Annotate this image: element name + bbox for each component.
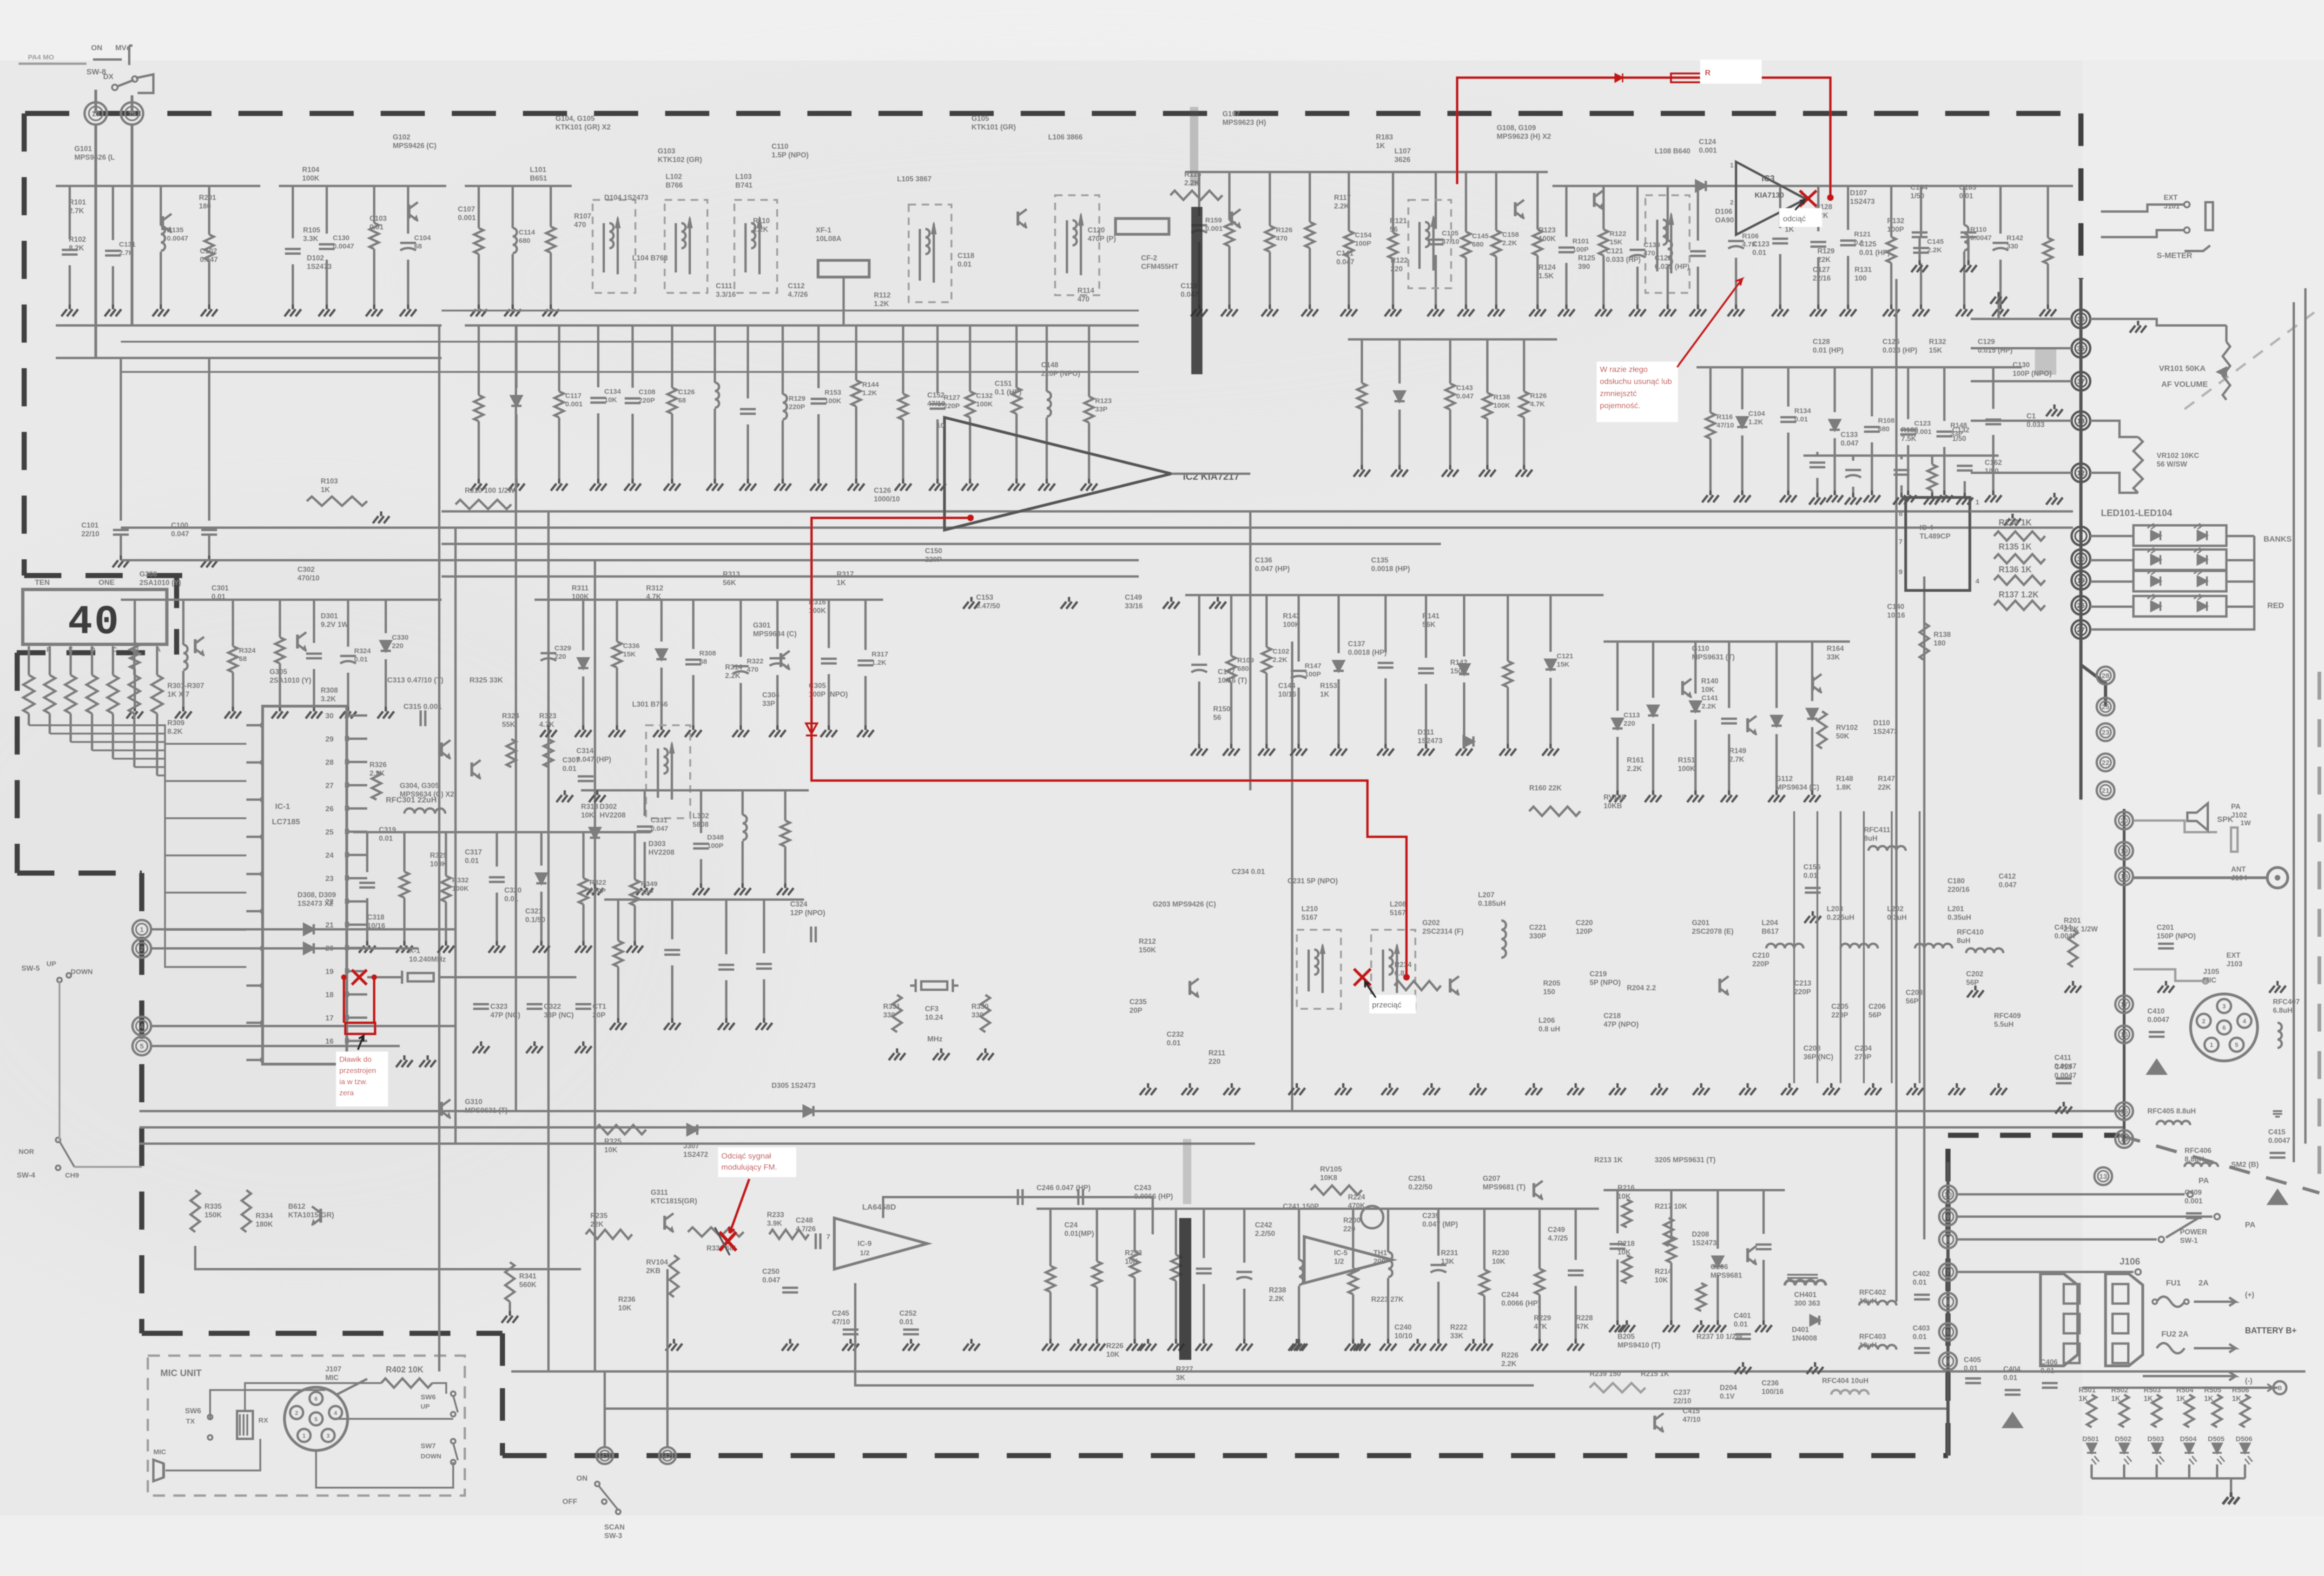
- svg-text:SW7: SW7: [421, 1442, 436, 1450]
- svg-text:220P: 220P: [789, 403, 805, 411]
- svg-text:30: 30: [325, 712, 334, 720]
- svg-text:C153: C153: [976, 594, 993, 602]
- svg-text:SW-1: SW-1: [2180, 1237, 2198, 1245]
- svg-text:220P (NPO): 220P (NPO): [1041, 370, 1080, 378]
- svg-text:0.0066 (HP): 0.0066 (HP): [1134, 1193, 1173, 1201]
- svg-text:Odciąć sygnał: Odciąć sygnał: [721, 1152, 771, 1160]
- svg-text:0.01: 0.01: [957, 261, 972, 269]
- svg-text:B651: B651: [530, 175, 547, 183]
- svg-text:C145: C145: [1927, 238, 1944, 246]
- svg-text:23: 23: [325, 875, 334, 883]
- svg-text:G203 MPS9426 (C): G203 MPS9426 (C): [1153, 901, 1216, 908]
- svg-text:2SA1010 (Y): 2SA1010 (Y): [139, 579, 181, 587]
- svg-text:SW-5: SW-5: [21, 965, 40, 973]
- svg-text:470: 470: [1644, 250, 1655, 258]
- svg-text:68: 68: [414, 243, 422, 251]
- svg-text:0.033: 0.033: [2027, 421, 2045, 429]
- svg-text:30: 30: [2077, 555, 2085, 563]
- svg-text:D302: D302: [600, 803, 617, 811]
- svg-text:C123: C123: [1752, 240, 1769, 248]
- svg-text:C144: C144: [1278, 682, 1295, 690]
- svg-text:20P: 20P: [1129, 1007, 1142, 1015]
- svg-text:MHz: MHz: [927, 1035, 943, 1043]
- svg-text:IC-4: IC-4: [1920, 524, 1934, 532]
- svg-text:B766: B766: [666, 182, 683, 190]
- svg-text:G201: G201: [1692, 919, 1710, 927]
- svg-text:100K: 100K: [1678, 765, 1696, 773]
- svg-text:14: 14: [128, 110, 136, 118]
- svg-text:1K: 1K: [2111, 1395, 2121, 1403]
- svg-text:3: 3: [327, 1433, 330, 1439]
- svg-text:220: 220: [1391, 265, 1403, 273]
- svg-text:D506: D506: [2236, 1435, 2252, 1443]
- svg-text:12: 12: [2077, 469, 2085, 477]
- svg-text:MIC UNIT: MIC UNIT: [160, 1368, 202, 1378]
- svg-text:1K: 1K: [321, 486, 330, 494]
- svg-text:R227: R227: [1176, 1365, 1193, 1373]
- svg-text:1K: 1K: [1320, 691, 1330, 699]
- svg-text:37: 37: [2077, 377, 2085, 385]
- svg-text:modulujący FM.: modulujący FM.: [721, 1163, 777, 1172]
- svg-text:2.2K: 2.2K: [1927, 246, 1942, 254]
- svg-text:RFC405 8.8uH: RFC405 8.8uH: [2147, 1107, 2196, 1115]
- svg-text:C218: C218: [1604, 1012, 1621, 1020]
- svg-text:IC3: IC3: [1762, 174, 1775, 183]
- svg-text:2.2K: 2.2K: [725, 672, 741, 680]
- svg-text:R312: R312: [646, 584, 663, 592]
- svg-text:C107: C107: [458, 205, 475, 213]
- svg-text:5P (NPO): 5P (NPO): [1590, 979, 1621, 987]
- svg-text:C118: C118: [957, 252, 975, 260]
- svg-text:G207: G207: [1483, 1175, 1500, 1183]
- svg-text:C322: C322: [544, 1003, 561, 1011]
- svg-text:C319: C319: [379, 826, 396, 834]
- svg-text:0.047: 0.047: [1999, 881, 2017, 889]
- svg-text:10K: 10K: [1655, 1277, 1668, 1285]
- svg-text:R317: R317: [837, 570, 854, 578]
- svg-text:R325 33K: R325 33K: [469, 676, 503, 684]
- svg-text:4.7/25: 4.7/25: [1548, 1235, 1568, 1243]
- svg-text:G110: G110: [1692, 645, 1709, 653]
- svg-text:19: 19: [2120, 847, 2128, 855]
- svg-text:470: 470: [1077, 296, 1089, 304]
- svg-text:0.047: 0.047: [171, 530, 189, 538]
- svg-text:R129: R129: [789, 395, 805, 403]
- svg-text:C108: C108: [639, 388, 655, 396]
- svg-text:36P (NC): 36P (NC): [1803, 1053, 1833, 1061]
- svg-text:150K: 150K: [1450, 668, 1468, 675]
- svg-text:150K: 150K: [1139, 947, 1156, 954]
- svg-text:MPS9631 (T): MPS9631 (T): [1692, 654, 1735, 662]
- svg-text:10K: 10K: [581, 812, 594, 820]
- svg-text:ia w tzw.: ia w tzw.: [339, 1078, 367, 1086]
- svg-text:55K: 55K: [502, 721, 515, 729]
- svg-text:L107: L107: [1394, 147, 1411, 155]
- svg-text:25: 25: [325, 828, 334, 836]
- svg-text:25: 25: [2102, 703, 2110, 711]
- svg-text:C315 0.001: C315 0.001: [403, 703, 442, 711]
- svg-text:7: 7: [1946, 1268, 1950, 1276]
- svg-text:5: 5: [315, 1416, 318, 1423]
- svg-text:15K: 15K: [1929, 347, 1942, 355]
- svg-text:56: 56: [1213, 714, 1221, 722]
- svg-text:IC-1: IC-1: [275, 802, 290, 811]
- svg-text:C415: C415: [1683, 1407, 1700, 1415]
- svg-text:R214: R214: [1655, 1268, 1672, 1276]
- svg-text:C231 5P (NPO): C231 5P (NPO): [1287, 877, 1338, 885]
- svg-text:0.01: 0.01: [1794, 416, 1808, 424]
- svg-text:10/16: 10/16: [1887, 612, 1905, 620]
- svg-text:3.3K: 3.3K: [303, 235, 319, 243]
- svg-text:PA: PA: [2231, 803, 2240, 811]
- svg-text:L206: L206: [1538, 1017, 1555, 1025]
- svg-text:C220: C220: [1576, 919, 1593, 927]
- svg-text:B617: B617: [1762, 928, 1779, 936]
- svg-text:R122: R122: [1391, 257, 1408, 265]
- svg-text:J106: J106: [2119, 1257, 2140, 1267]
- svg-text:680: 680: [519, 237, 530, 245]
- svg-text:DOWN: DOWN: [421, 1452, 441, 1460]
- svg-text:X-1: X-1: [409, 947, 421, 955]
- svg-text:C239: C239: [1422, 1212, 1439, 1220]
- svg-text:2.2/50: 2.2/50: [1255, 1230, 1275, 1238]
- svg-text:R121: R121: [1390, 217, 1407, 225]
- svg-text:VR101 50KA: VR101 50KA: [2159, 364, 2205, 373]
- svg-text:C129: C129: [1978, 338, 1995, 346]
- svg-text:2.2K 1/2W: 2.2K 1/2W: [2064, 926, 2098, 934]
- svg-text:1/50: 1/50: [1910, 192, 1924, 200]
- svg-text:KTK102 (GR): KTK102 (GR): [658, 156, 702, 164]
- svg-text:C329: C329: [555, 644, 571, 652]
- svg-text:R107: R107: [574, 212, 591, 220]
- svg-text:C321: C321: [525, 907, 542, 915]
- svg-text:1: 1: [303, 1433, 306, 1439]
- svg-text:pojemność.: pojemność.: [1600, 401, 1640, 410]
- svg-text:ON: ON: [91, 44, 102, 52]
- svg-text:NOR: NOR: [19, 1148, 34, 1156]
- svg-text:MPS9634 (C): MPS9634 (C): [1776, 784, 1819, 792]
- svg-text:C139: C139: [1644, 241, 1660, 249]
- svg-text:HV2208: HV2208: [600, 812, 626, 820]
- svg-text:220: 220: [1624, 720, 1635, 728]
- svg-text:15K: 15K: [1557, 661, 1570, 669]
- svg-text:33P: 33P: [1095, 405, 1108, 413]
- svg-text:R332: R332: [452, 876, 469, 884]
- svg-text:1.2K: 1.2K: [1748, 418, 1763, 426]
- svg-text:R140: R140: [1701, 677, 1718, 685]
- svg-text:D208: D208: [1692, 1231, 1709, 1238]
- svg-text:R215 1K: R215 1K: [1641, 1370, 1670, 1378]
- svg-text:16: 16: [325, 1038, 334, 1046]
- svg-text:R160 22K: R160 22K: [1529, 784, 1562, 792]
- svg-text:68: 68: [700, 658, 707, 666]
- svg-text:R308: R308: [321, 687, 338, 695]
- svg-text:220P: 220P: [925, 556, 942, 564]
- svg-text:R143: R143: [1283, 612, 1300, 620]
- svg-text:22: 22: [2102, 759, 2110, 767]
- svg-text:3.2K: 3.2K: [321, 695, 337, 703]
- svg-text:C201: C201: [2157, 924, 2174, 932]
- svg-text:22/10: 22/10: [81, 530, 99, 538]
- svg-text:KTA1015(GR): KTA1015(GR): [288, 1212, 334, 1219]
- svg-text:SPK: SPK: [2217, 815, 2234, 824]
- svg-text:HV2208: HV2208: [648, 849, 674, 857]
- svg-text:2KB: 2KB: [646, 1267, 660, 1275]
- svg-text:R101: R101: [1572, 238, 1589, 245]
- svg-text:R129: R129: [1817, 247, 1835, 255]
- svg-text:1000/10: 1000/10: [874, 496, 900, 503]
- svg-text:R148: R148: [1836, 775, 1853, 783]
- svg-text:R136 1K: R136 1K: [1999, 565, 2032, 574]
- svg-text:33K: 33K: [1827, 654, 1840, 662]
- svg-text:LA6458D: LA6458D: [862, 1203, 896, 1212]
- svg-text:0.047 (HP): 0.047 (HP): [1255, 565, 1290, 573]
- svg-text:R183: R183: [1376, 133, 1393, 141]
- svg-text:4: 4: [1975, 577, 1980, 585]
- svg-text:10: 10: [937, 422, 944, 430]
- svg-text:5: 5: [2235, 1041, 2238, 1048]
- svg-text:100K: 100K: [572, 593, 589, 601]
- svg-text:1: 1: [1975, 498, 1979, 506]
- svg-text:R201: R201: [199, 194, 216, 202]
- svg-text:R104: R104: [302, 166, 319, 174]
- svg-text:C232: C232: [1167, 1031, 1184, 1039]
- svg-text:PA4 MO: PA4 MO: [28, 53, 54, 61]
- svg-text:AF VOLUME: AF VOLUME: [2161, 380, 2208, 389]
- svg-text:1N4008: 1N4008: [1792, 1335, 1817, 1343]
- svg-text:L210: L210: [1301, 905, 1318, 913]
- svg-text:220P: 220P: [1794, 988, 1811, 996]
- svg-text:CT1: CT1: [593, 1003, 607, 1011]
- svg-text:R117: R117: [1334, 194, 1351, 202]
- svg-text:1.5P (NPO): 1.5P (NPO): [772, 152, 809, 159]
- svg-text:8: 8: [1899, 510, 1902, 518]
- svg-text:MPS9623 (H) X2: MPS9623 (H) X2: [1497, 133, 1551, 141]
- svg-text:10K: 10K: [604, 1146, 618, 1154]
- svg-text:TX: TX: [186, 1417, 195, 1425]
- svg-text:1K: 1K: [2204, 1395, 2214, 1403]
- svg-text:2SA1010 (Y): 2SA1010 (Y): [270, 677, 311, 685]
- svg-text:33P (NC): 33P (NC): [544, 1012, 574, 1020]
- svg-text:RFC406: RFC406: [2185, 1147, 2212, 1155]
- svg-text:1/50: 1/50: [1985, 468, 1999, 476]
- svg-text:R324: R324: [354, 647, 371, 655]
- svg-text:C1: C1: [2027, 412, 2036, 420]
- svg-text:R116: R116: [1717, 413, 1733, 421]
- svg-text:J102: J102: [2231, 812, 2247, 820]
- svg-text:EXT: EXT: [2164, 194, 2178, 202]
- svg-text:R127: R127: [944, 394, 960, 402]
- svg-text:G301: G301: [753, 622, 771, 629]
- svg-text:SCAN: SCAN: [604, 1523, 625, 1531]
- svg-text:D505: D505: [2208, 1435, 2225, 1443]
- svg-text:C143: C143: [1456, 384, 1473, 392]
- svg-text:680: 680: [1237, 665, 1249, 673]
- svg-text:R147: R147: [1878, 775, 1895, 783]
- svg-text:220P: 220P: [589, 887, 606, 895]
- svg-text:R144: R144: [862, 381, 879, 389]
- svg-text:C132: C132: [1952, 426, 1969, 434]
- svg-text:47/10: 47/10: [927, 400, 945, 408]
- svg-text:MPS9426 (C): MPS9426 (C): [393, 142, 436, 150]
- svg-text:1.2K: 1.2K: [753, 226, 769, 234]
- svg-text:R123: R123: [1538, 226, 1556, 234]
- svg-text:C162: C162: [1985, 459, 2002, 467]
- svg-text:L302: L302: [693, 812, 709, 820]
- svg-text:C117: C117: [565, 392, 581, 400]
- svg-text:180: 180: [199, 203, 211, 211]
- svg-text:RFC404 10uH: RFC404 10uH: [1822, 1377, 1868, 1385]
- svg-text:RFC403: RFC403: [1859, 1333, 1886, 1341]
- svg-text:2A: 2A: [2199, 1278, 2209, 1287]
- svg-text:R147: R147: [1305, 662, 1321, 670]
- svg-text:C148: C148: [1041, 361, 1058, 369]
- svg-text:R228: R228: [1576, 1314, 1593, 1322]
- svg-text:10K: 10K: [1106, 1351, 1120, 1359]
- svg-text:C324: C324: [790, 901, 807, 908]
- svg-text:7.5K: 7.5K: [1901, 435, 1917, 443]
- svg-text:MPS9623 (H): MPS9623 (H): [1222, 119, 1266, 127]
- svg-text:28: 28: [325, 759, 334, 767]
- svg-text:220P: 220P: [639, 397, 655, 404]
- svg-text:D303: D303: [648, 840, 666, 848]
- svg-text:22/10: 22/10: [1673, 1397, 1691, 1405]
- svg-text:2.2K: 2.2K: [1334, 203, 1350, 211]
- svg-text:C323: C323: [490, 1003, 508, 1011]
- svg-text:8uH: 8uH: [1957, 937, 1970, 945]
- svg-text:D308, D309: D308, D309: [297, 891, 336, 899]
- svg-text:100P: 100P: [1572, 246, 1589, 254]
- svg-text:42: 42: [664, 1452, 672, 1460]
- svg-text:R402 10K: R402 10K: [386, 1365, 423, 1374]
- svg-text:B741: B741: [735, 182, 753, 190]
- svg-text:C403: C403: [1913, 1324, 1930, 1332]
- svg-text:4.7/26: 4.7/26: [796, 1225, 816, 1233]
- svg-text:220/16: 220/16: [1948, 886, 1970, 894]
- svg-text:10: 10: [1944, 1191, 1952, 1199]
- svg-text:17: 17: [325, 1014, 334, 1022]
- svg-text:C136: C136: [1255, 556, 1272, 564]
- svg-text:6.8uH: 6.8uH: [2273, 1007, 2292, 1015]
- svg-text:C113: C113: [1624, 711, 1640, 719]
- svg-text:C105: C105: [1442, 230, 1459, 238]
- svg-text:0.001: 0.001: [565, 400, 583, 408]
- svg-text:RV105: RV105: [1604, 794, 1625, 801]
- svg-text:0.1V: 0.1V: [1720, 1393, 1735, 1401]
- svg-text:R325: R325: [430, 852, 447, 860]
- svg-text:470: 470: [747, 666, 759, 674]
- svg-text:MPS9634 (C): MPS9634 (C): [753, 630, 797, 638]
- svg-text:R101: R101: [69, 199, 86, 206]
- svg-text:D104 1S2473: D104 1S2473: [604, 194, 648, 202]
- svg-text:0.001: 0.001: [458, 214, 476, 222]
- svg-text:G306: G306: [139, 570, 157, 578]
- svg-text:C302: C302: [297, 566, 315, 574]
- svg-text:100: 100: [1855, 275, 1867, 283]
- svg-text:(-): (-): [2245, 1377, 2252, 1385]
- svg-text:C249: C249: [1548, 1226, 1565, 1234]
- svg-text:4: 4: [2243, 1018, 2246, 1025]
- svg-text:150K: 150K: [205, 1212, 222, 1219]
- svg-text:C141: C141: [1336, 250, 1353, 258]
- svg-text:R200: R200: [1343, 1217, 1360, 1225]
- svg-text:0.001: 0.001: [2185, 1198, 2203, 1205]
- svg-text:3205 MPS9631 (T): 3205 MPS9631 (T): [1655, 1156, 1716, 1164]
- svg-text:2.2K: 2.2K: [1273, 656, 1287, 664]
- svg-text:180: 180: [1934, 640, 1946, 648]
- svg-text:0.047: 0.047: [200, 256, 218, 264]
- svg-text:C101: C101: [81, 522, 99, 530]
- svg-text:0.0047: 0.0047: [2147, 1016, 2169, 1024]
- svg-text:POWER: POWER: [2180, 1228, 2207, 1236]
- svg-text:L104 B763: L104 B763: [632, 254, 668, 262]
- svg-text:RFC407: RFC407: [2273, 998, 2300, 1006]
- svg-text:D111: D111: [1418, 728, 1434, 736]
- svg-text:R134: R134: [1794, 407, 1811, 415]
- svg-text:RFC410: RFC410: [1957, 928, 1984, 936]
- svg-text:D503: D503: [2147, 1435, 2164, 1443]
- svg-text:9: 9: [1946, 1213, 1950, 1221]
- svg-text:50K: 50K: [1836, 733, 1849, 741]
- svg-text:C133: C133: [1841, 431, 1858, 439]
- svg-text:C318: C318: [367, 914, 384, 921]
- svg-text:L108 B640: L108 B640: [1655, 147, 1690, 155]
- svg-text:FU1: FU1: [2166, 1278, 2181, 1287]
- svg-text:LED101-LED104: LED101-LED104: [2101, 508, 2172, 518]
- svg-text:1: 1: [1730, 161, 1734, 169]
- svg-text:DOWN: DOWN: [71, 968, 93, 976]
- svg-text:6: 6: [315, 1396, 318, 1402]
- svg-text:RFC411: RFC411: [1864, 826, 1890, 834]
- svg-text:R226: R226: [1501, 1351, 1519, 1359]
- svg-text:C402: C402: [1913, 1270, 1930, 1278]
- svg-text:68: 68: [678, 397, 686, 404]
- svg-text:MIC: MIC: [153, 1448, 166, 1456]
- svg-text:100K: 100K: [976, 400, 993, 408]
- svg-text:100K: 100K: [825, 397, 841, 405]
- svg-text:C149: C149: [1125, 594, 1142, 602]
- svg-text:0.01: 0.01: [370, 224, 384, 232]
- svg-text:G101: G101: [74, 145, 92, 153]
- svg-text:L208: L208: [1390, 901, 1406, 908]
- svg-text:33K: 33K: [1450, 1332, 1464, 1340]
- svg-text:C236: C236: [1762, 1379, 1779, 1387]
- svg-text:C151: C151: [995, 380, 1012, 388]
- svg-text:C336: C336: [623, 642, 640, 650]
- svg-text:1S2473: 1S2473: [1850, 198, 1875, 206]
- svg-text:R114: R114: [1077, 287, 1095, 295]
- svg-text:180K: 180K: [256, 1221, 273, 1229]
- svg-text:0.047 (MP): 0.047 (MP): [1422, 1221, 1458, 1229]
- svg-text:24: 24: [325, 852, 334, 860]
- svg-text:33/16: 33/16: [1125, 603, 1143, 610]
- svg-text:300 363: 300 363: [1794, 1300, 1820, 1308]
- svg-text:0.0047: 0.0047: [2268, 1137, 2290, 1145]
- svg-text:10.240MHz: 10.240MHz: [409, 956, 446, 964]
- svg-text:W razie złego: W razie złego: [1600, 365, 1648, 374]
- svg-text:R142: R142: [2007, 234, 2023, 242]
- svg-text:100P: 100P: [1355, 240, 1371, 248]
- svg-text:MPS9681: MPS9681: [1710, 1272, 1742, 1280]
- svg-text:C183: C183: [1959, 184, 1976, 192]
- svg-text:R153: R153: [1320, 682, 1337, 690]
- svg-text:9.2V 1W: 9.2V 1W: [321, 621, 349, 629]
- svg-text:C401: C401: [1734, 1312, 1751, 1320]
- svg-text:4: 4: [334, 1410, 337, 1416]
- svg-text:C125: C125: [1859, 240, 1876, 248]
- svg-text:C134: C134: [604, 388, 621, 396]
- svg-text:4.7K: 4.7K: [539, 721, 555, 729]
